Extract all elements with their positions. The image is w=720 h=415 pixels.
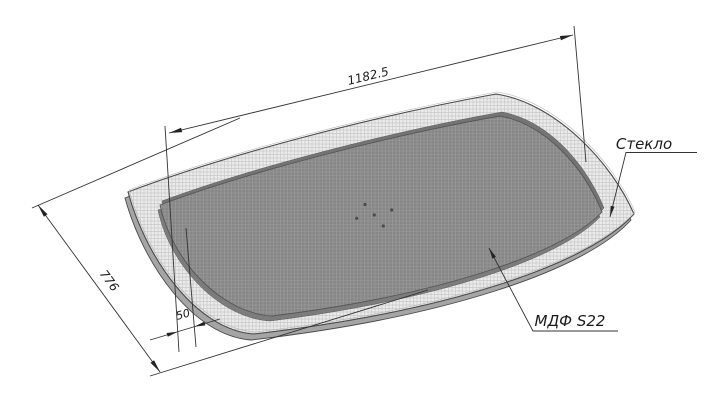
dimension-line [150, 319, 220, 340]
glass-label: Стекло [616, 135, 672, 153]
table-top-drawing: 1182.5 776 50 Стекло МДФ S22 [0, 0, 720, 415]
mounting-hole [363, 203, 366, 206]
arrowhead [38, 205, 48, 217]
arrowhead [167, 332, 178, 337]
mdf-panel-surface [160, 116, 602, 316]
mounting-hole [390, 208, 393, 211]
arrowhead [560, 35, 573, 40]
arrowhead [169, 128, 182, 133]
arrowhead [151, 360, 161, 372]
arrowhead [194, 322, 205, 327]
mdf-label: МДФ S22 [535, 312, 606, 330]
mounting-hole [373, 213, 376, 216]
mounting-hole [355, 217, 358, 220]
technical-drawing-canvas: 1182.5 776 50 Стекло МДФ S22 [0, 0, 720, 415]
mounting-hole [382, 224, 385, 227]
